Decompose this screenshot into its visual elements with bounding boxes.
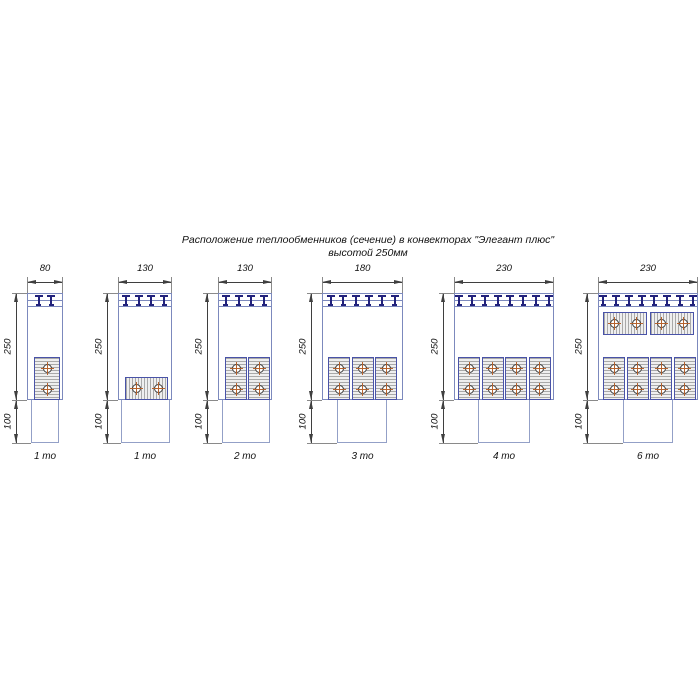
bracket-icon	[638, 295, 646, 306]
bracket-stem	[679, 297, 681, 304]
bracket-stem	[628, 297, 630, 304]
bracket-icon	[689, 295, 697, 306]
center-mark-v-icon	[362, 362, 363, 375]
dimension-arrow-icon	[585, 391, 589, 400]
center-mark-v-icon	[684, 383, 685, 396]
bracket-icon	[612, 295, 620, 306]
center-mark-v-icon	[259, 383, 260, 396]
diagram-caption: 1 то	[115, 451, 175, 462]
bracket-icon	[378, 295, 386, 306]
bracket-foot	[36, 304, 41, 306]
tube-hole	[655, 362, 668, 375]
diagram-caption: 2 то	[215, 451, 275, 462]
bracket-foot	[457, 304, 462, 306]
center-mark-v-icon	[492, 362, 493, 375]
center-mark-v-icon	[259, 362, 260, 375]
tube-hole	[380, 362, 393, 375]
bracket-icon	[599, 295, 607, 306]
dimension-arrow-icon	[441, 400, 445, 409]
tube-hole	[41, 383, 54, 396]
tube-hole	[333, 383, 346, 396]
tube-hole	[510, 362, 523, 375]
bracket-icon	[391, 295, 399, 306]
bracket-foot	[652, 304, 657, 306]
tube-hole	[677, 317, 690, 330]
width-dimension-label: 130	[115, 263, 175, 274]
bracket-stem	[138, 297, 140, 304]
bracket-foot	[495, 304, 500, 306]
center-mark-v-icon	[469, 383, 470, 396]
dimension-arrow-icon	[205, 391, 209, 400]
grille-line	[322, 306, 403, 307]
tube-hole	[630, 317, 643, 330]
bracket-icon	[625, 295, 633, 306]
bracket-stem	[471, 297, 473, 304]
dimension-arrow-icon	[689, 280, 698, 284]
dimension-arrow-icon	[309, 400, 313, 409]
bracket-stem	[150, 297, 152, 304]
bracket-icon	[481, 295, 489, 306]
dimension-arrow-icon	[585, 434, 589, 443]
width-dimension-label: 230	[474, 263, 534, 274]
extension-line	[203, 443, 222, 444]
center-mark-v-icon	[614, 383, 615, 396]
tube-hole	[130, 382, 143, 395]
bracket-stem	[458, 297, 460, 304]
bracket-icon	[222, 295, 230, 306]
bracket-foot	[249, 304, 254, 306]
height-dimension-label: 250	[3, 331, 14, 361]
dimension-arrow-icon	[54, 280, 63, 284]
diagram-caption: 6 то	[618, 451, 678, 462]
dimension-arrow-icon	[309, 293, 313, 302]
pedestal-outline	[222, 400, 270, 443]
center-mark-v-icon	[492, 383, 493, 396]
bracket-stem	[641, 297, 643, 304]
bracket-stem	[484, 297, 486, 304]
tube-hole	[486, 362, 499, 375]
bracket-icon	[122, 295, 130, 306]
center-mark-v-icon	[516, 362, 517, 375]
bracket-icon	[160, 295, 168, 306]
extension-line	[103, 443, 121, 444]
height-dimension-label: 250	[94, 331, 105, 361]
pedestal-outline	[121, 400, 170, 443]
bracket-stem	[509, 297, 511, 304]
bracket-foot	[482, 304, 487, 306]
dimension-arrow-icon	[105, 293, 109, 302]
bracket-foot	[614, 304, 619, 306]
bracket-icon	[365, 295, 373, 306]
dimension-arrow-icon	[105, 434, 109, 443]
center-mark-v-icon	[661, 317, 662, 330]
bracket-foot	[162, 304, 167, 306]
bracket-foot	[392, 304, 397, 306]
bracket-icon	[532, 295, 540, 306]
bracket-icon	[455, 295, 463, 306]
center-mark-v-icon	[386, 362, 387, 375]
bracket-foot	[49, 304, 54, 306]
dimension-line	[587, 293, 588, 443]
drawing-canvas: Расположение теплообменников (сечение) в…	[0, 0, 700, 700]
bracket-icon	[339, 295, 347, 306]
base-height-dimension-label: 100	[430, 406, 441, 436]
dimension-arrow-icon	[14, 400, 18, 409]
bracket-stem	[163, 297, 165, 304]
dimension-arrow-icon	[105, 400, 109, 409]
bracket-icon	[247, 295, 255, 306]
bracket-foot	[521, 304, 526, 306]
center-mark-v-icon	[158, 382, 159, 395]
bracket-icon	[47, 295, 55, 306]
bracket-icon	[545, 295, 553, 306]
tube-hole	[230, 362, 243, 375]
bracket-stem	[497, 297, 499, 304]
tube-hole	[631, 362, 644, 375]
title-line-2: высотой 250мм	[36, 247, 700, 260]
bracket-icon	[494, 295, 502, 306]
bracket-stem	[615, 297, 617, 304]
tube-hole	[655, 317, 668, 330]
bracket-foot	[546, 304, 551, 306]
grille-line	[218, 306, 272, 307]
center-mark-v-icon	[661, 383, 662, 396]
height-dimension-label: 250	[298, 331, 309, 361]
bracket-foot	[149, 304, 154, 306]
tube-hole	[230, 383, 243, 396]
bracket-stem	[692, 297, 694, 304]
bracket-foot	[379, 304, 384, 306]
dimension-arrow-icon	[27, 280, 36, 284]
bracket-icon	[468, 295, 476, 306]
tube-hole	[380, 383, 393, 396]
dimension-arrow-icon	[163, 280, 172, 284]
dimension-arrow-icon	[441, 434, 445, 443]
tube-hole	[510, 383, 523, 396]
dimension-arrow-icon	[14, 391, 18, 400]
dimension-arrow-icon	[14, 293, 18, 302]
dimension-arrow-icon	[118, 280, 127, 284]
dimension-arrow-icon	[218, 280, 227, 284]
center-mark-v-icon	[236, 383, 237, 396]
pedestal-outline	[337, 400, 387, 443]
tube-hole	[356, 362, 369, 375]
bracket-foot	[223, 304, 228, 306]
center-mark-v-icon	[614, 362, 615, 375]
bracket-stem	[342, 297, 344, 304]
bracket-icon	[519, 295, 527, 306]
bracket-foot	[123, 304, 128, 306]
dimension-arrow-icon	[585, 400, 589, 409]
dimension-arrow-icon	[598, 280, 607, 284]
dimension-line	[322, 282, 403, 283]
bracket-foot	[366, 304, 371, 306]
bracket-stem	[225, 297, 227, 304]
center-mark-v-icon	[539, 362, 540, 375]
center-mark-v-icon	[516, 383, 517, 396]
width-dimension-label: 180	[333, 263, 393, 274]
bracket-stem	[330, 297, 332, 304]
width-dimension-label: 80	[15, 263, 75, 274]
bracket-icon	[35, 295, 43, 306]
dimension-arrow-icon	[322, 280, 331, 284]
grille-line	[27, 306, 63, 307]
drawing-title: Расположение теплообменников (сечение) в…	[36, 234, 700, 260]
extension-line	[583, 443, 623, 444]
bracket-stem	[238, 297, 240, 304]
bracket-stem	[548, 297, 550, 304]
tube-hole	[41, 362, 54, 375]
bracket-foot	[626, 304, 631, 306]
dimension-line	[207, 293, 208, 443]
bracket-icon	[663, 295, 671, 306]
tube-hole	[533, 383, 546, 396]
dimension-arrow-icon	[394, 280, 403, 284]
height-dimension-label: 250	[194, 331, 205, 361]
pedestal-outline	[31, 400, 59, 443]
dimension-arrow-icon	[441, 293, 445, 302]
base-height-dimension-label: 100	[574, 406, 585, 436]
bracket-stem	[522, 297, 524, 304]
bracket-stem	[381, 297, 383, 304]
center-mark-v-icon	[637, 362, 638, 375]
dimension-arrow-icon	[309, 434, 313, 443]
tube-hole	[608, 362, 621, 375]
center-mark-v-icon	[636, 317, 637, 330]
extension-line	[12, 443, 31, 444]
dimension-arrow-icon	[205, 293, 209, 302]
bracket-icon	[327, 295, 335, 306]
bracket-icon	[260, 295, 268, 306]
bracket-stem	[666, 297, 668, 304]
center-mark-v-icon	[47, 383, 48, 396]
title-line-1: Расположение теплообменников (сечение) в…	[36, 234, 700, 247]
tube-hole	[486, 383, 499, 396]
bracket-foot	[690, 304, 695, 306]
grille-line	[598, 306, 698, 307]
center-mark-v-icon	[661, 362, 662, 375]
dimension-line	[16, 293, 17, 443]
center-mark-v-icon	[362, 383, 363, 396]
tube-hole	[678, 383, 691, 396]
tube-hole	[533, 362, 546, 375]
tube-hole	[608, 383, 621, 396]
base-height-dimension-label: 100	[298, 406, 309, 436]
bracket-stem	[125, 297, 127, 304]
bracket-icon	[650, 295, 658, 306]
dimension-line	[311, 293, 312, 443]
diagram-caption: 4 то	[474, 451, 534, 462]
center-mark-v-icon	[539, 383, 540, 396]
bracket-stem	[368, 297, 370, 304]
dimension-arrow-icon	[454, 280, 463, 284]
dimension-arrow-icon	[309, 391, 313, 400]
tube-hole	[333, 362, 346, 375]
width-dimension-label: 230	[618, 263, 678, 274]
dimension-arrow-icon	[545, 280, 554, 284]
center-mark-v-icon	[637, 383, 638, 396]
center-mark-v-icon	[684, 362, 685, 375]
tube-hole	[356, 383, 369, 396]
pedestal-outline	[623, 400, 673, 443]
diagram-caption: 3 то	[333, 451, 393, 462]
bracket-foot	[262, 304, 267, 306]
bracket-icon	[676, 295, 684, 306]
tube-hole	[655, 383, 668, 396]
dimension-line	[443, 293, 444, 443]
base-height-dimension-label: 100	[94, 406, 105, 436]
bracket-foot	[534, 304, 539, 306]
bracket-foot	[508, 304, 513, 306]
tube-hole	[253, 383, 266, 396]
bracket-stem	[535, 297, 537, 304]
base-height-dimension-label: 100	[3, 406, 14, 436]
extension-line	[307, 443, 337, 444]
tube-hole	[152, 382, 165, 395]
width-dimension-label: 130	[215, 263, 275, 274]
height-dimension-label: 250	[430, 331, 441, 361]
tube-hole	[608, 317, 621, 330]
tube-hole	[678, 362, 691, 375]
tube-hole	[463, 362, 476, 375]
bracket-foot	[136, 304, 141, 306]
dimension-arrow-icon	[205, 400, 209, 409]
bracket-foot	[639, 304, 644, 306]
tube-hole	[253, 362, 266, 375]
center-mark-v-icon	[339, 383, 340, 396]
bracket-foot	[470, 304, 475, 306]
center-mark-v-icon	[136, 382, 137, 395]
bracket-stem	[653, 297, 655, 304]
dimension-arrow-icon	[585, 293, 589, 302]
extension-line	[439, 443, 478, 444]
base-height-dimension-label: 100	[194, 406, 205, 436]
bracket-stem	[50, 297, 52, 304]
grille-line	[27, 300, 63, 301]
dimension-arrow-icon	[205, 434, 209, 443]
grille-line	[118, 306, 172, 307]
dimension-line	[454, 282, 554, 283]
bracket-icon	[352, 295, 360, 306]
bracket-stem	[38, 297, 40, 304]
bracket-icon	[506, 295, 514, 306]
tube-hole	[463, 383, 476, 396]
bracket-foot	[665, 304, 670, 306]
dimension-arrow-icon	[105, 391, 109, 400]
dimension-line	[598, 282, 698, 283]
pedestal-outline	[478, 400, 530, 443]
dimension-line	[107, 293, 108, 443]
dimension-arrow-icon	[263, 280, 272, 284]
diagram-caption: 1 то	[15, 451, 75, 462]
center-mark-v-icon	[386, 383, 387, 396]
bracket-foot	[678, 304, 683, 306]
bracket-icon	[135, 295, 143, 306]
center-mark-v-icon	[469, 362, 470, 375]
dimension-arrow-icon	[14, 434, 18, 443]
center-mark-v-icon	[339, 362, 340, 375]
bracket-foot	[601, 304, 606, 306]
bracket-foot	[354, 304, 359, 306]
bracket-icon	[235, 295, 243, 306]
tube-hole	[631, 383, 644, 396]
center-mark-v-icon	[614, 317, 615, 330]
bracket-icon	[147, 295, 155, 306]
bracket-stem	[602, 297, 604, 304]
bracket-foot	[328, 304, 333, 306]
height-dimension-label: 250	[574, 331, 585, 361]
grille-line	[454, 306, 554, 307]
center-mark-v-icon	[47, 362, 48, 375]
bracket-stem	[250, 297, 252, 304]
bracket-foot	[341, 304, 346, 306]
bracket-foot	[236, 304, 241, 306]
bracket-stem	[355, 297, 357, 304]
center-mark-v-icon	[236, 362, 237, 375]
center-mark-v-icon	[683, 317, 684, 330]
bracket-stem	[263, 297, 265, 304]
bracket-stem	[394, 297, 396, 304]
dimension-arrow-icon	[441, 391, 445, 400]
